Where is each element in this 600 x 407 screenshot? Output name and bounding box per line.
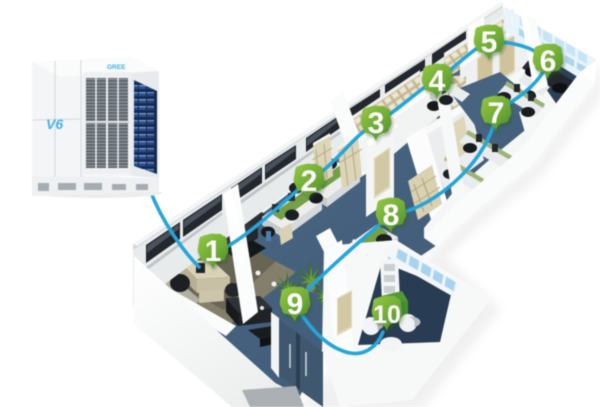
svg-text:6: 6 [540, 45, 557, 78]
svg-text:2: 2 [301, 165, 318, 198]
svg-text:GREE: GREE [107, 64, 126, 71]
svg-text:3: 3 [368, 107, 385, 140]
svg-text:1: 1 [205, 235, 222, 268]
svg-text:9: 9 [287, 288, 304, 321]
svg-text:8: 8 [383, 199, 400, 232]
svg-text:10: 10 [373, 301, 401, 329]
svg-text:5: 5 [481, 26, 498, 59]
svg-text:4: 4 [429, 65, 446, 98]
svg-text:V6: V6 [46, 116, 63, 132]
svg-text:7: 7 [488, 97, 505, 130]
